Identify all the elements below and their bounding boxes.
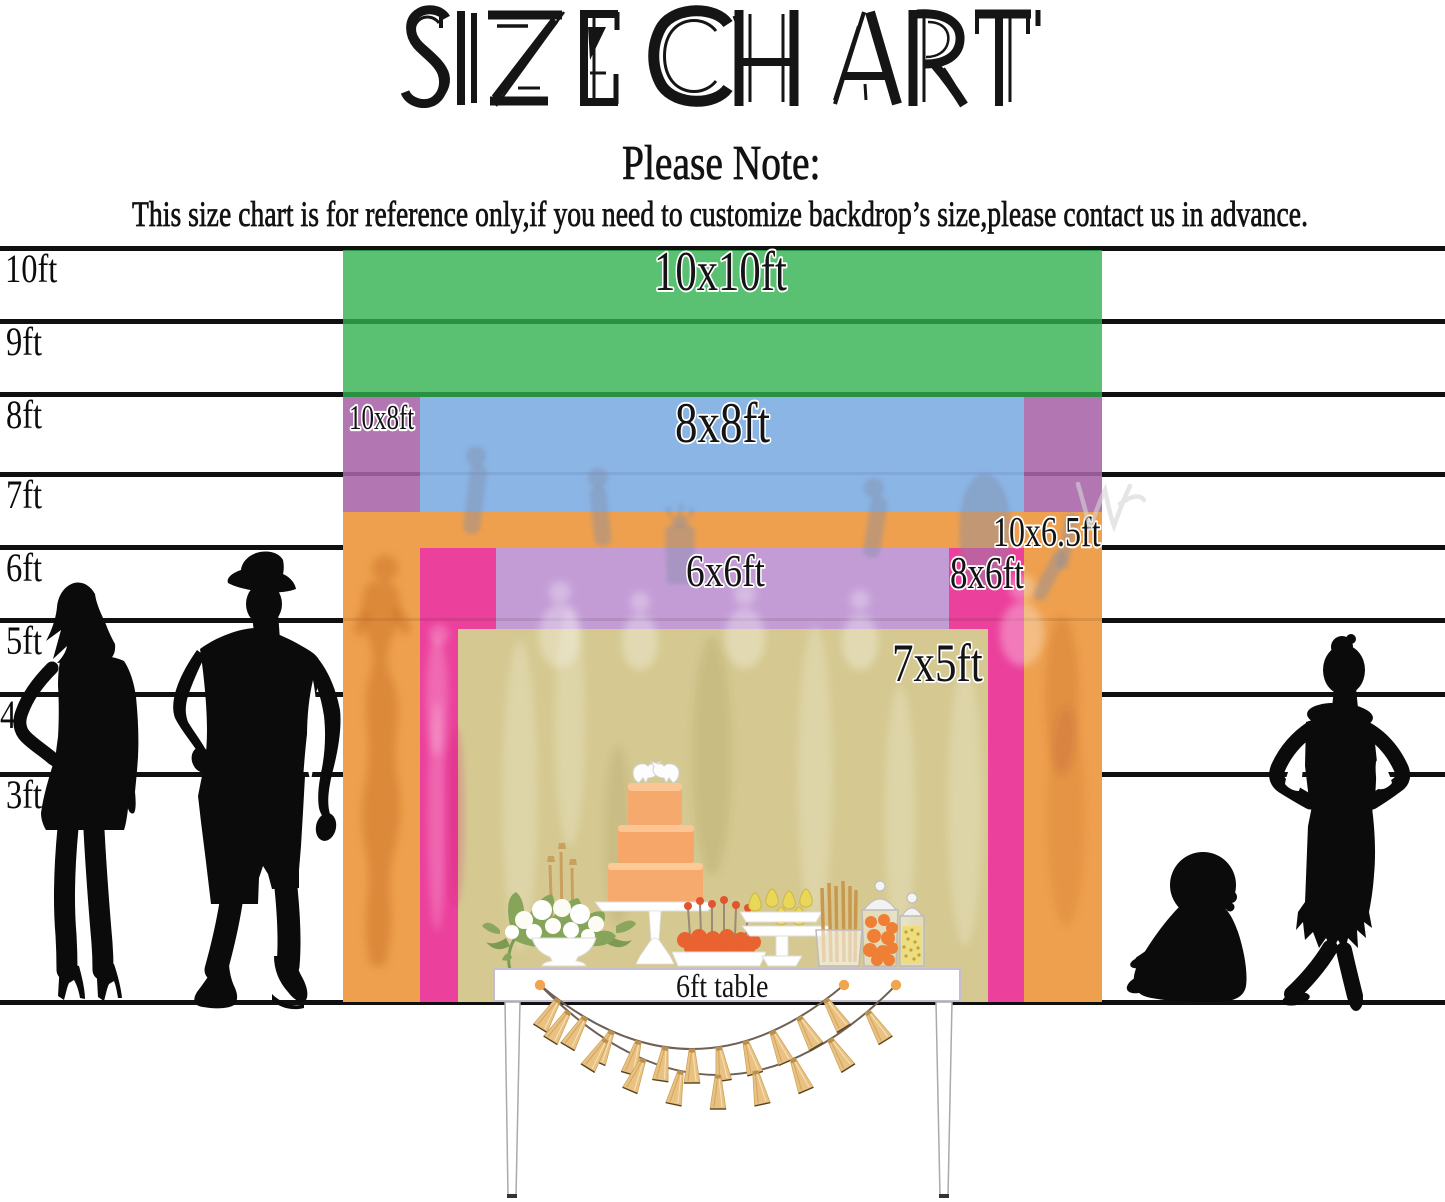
- svg-text:This size chart is for referen: This size chart is for reference only,if…: [132, 193, 1308, 233]
- svg-text:Please Note:: Please Note:: [622, 136, 820, 190]
